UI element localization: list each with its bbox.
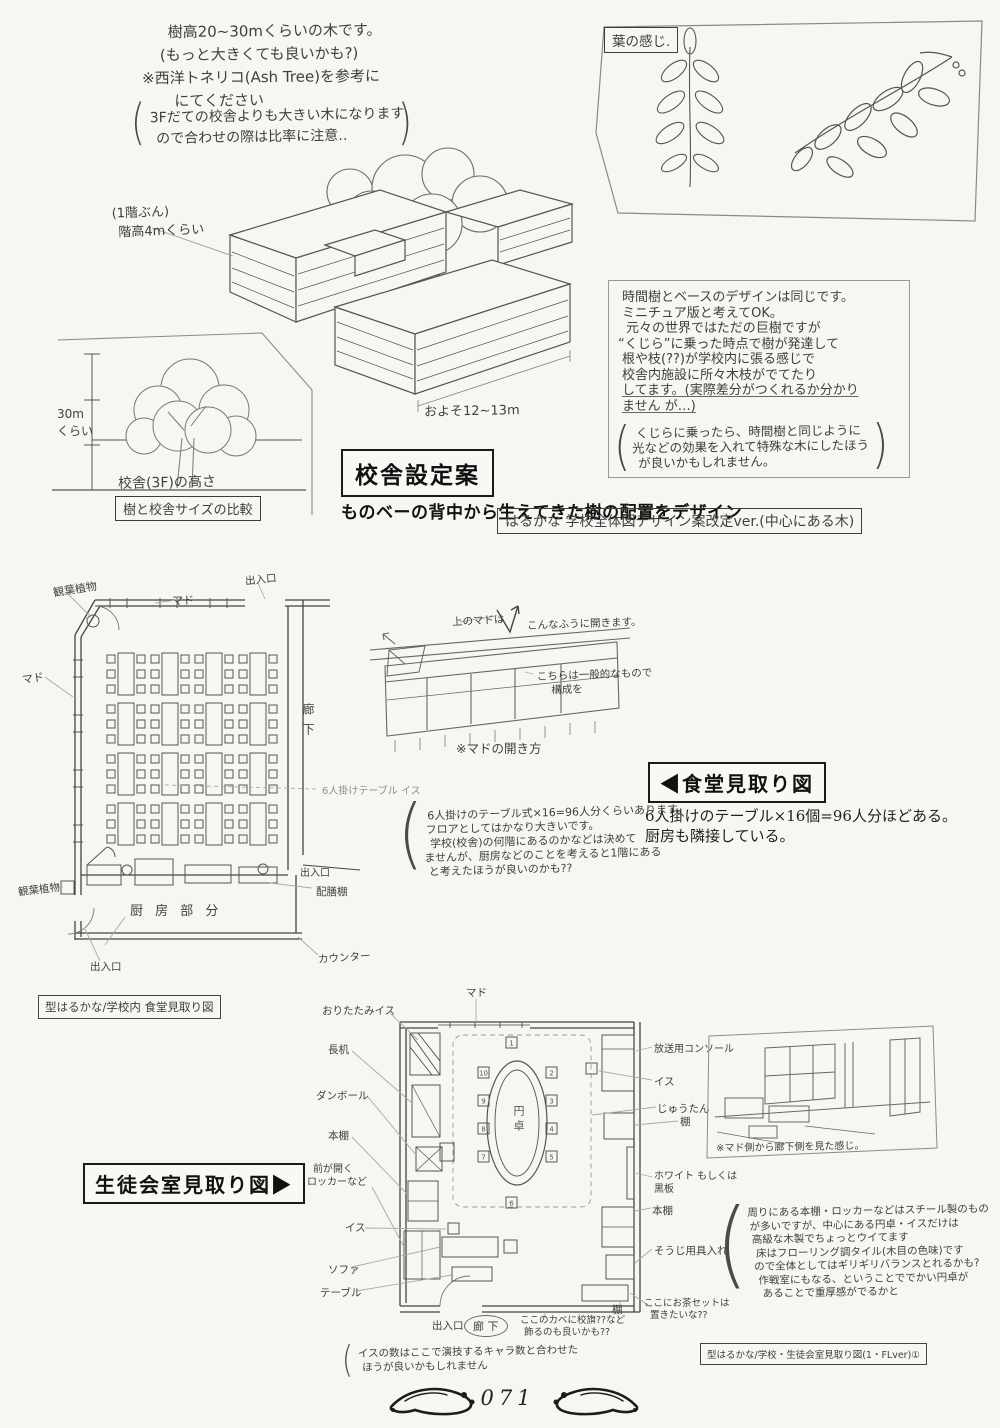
seat-number: 10	[479, 1070, 488, 1078]
note-line: くらい	[57, 423, 93, 440]
council-label-cardboard: ダンボール	[316, 1088, 369, 1103]
note-line: 前が開く	[313, 1163, 367, 1176]
council-label-chair-right: イス	[654, 1074, 675, 1089]
open-paren: (	[614, 420, 630, 473]
cafeteria-label-kitchen: 厨 房 部 分	[130, 900, 222, 919]
cafeteria-label-serving-shelf: 配膳棚	[316, 884, 348, 899]
council-label-locker: 前が開く ロッカーなど	[313, 1163, 367, 1189]
window-note-top-1: 上のマドは	[452, 612, 505, 630]
note-line: 階高4mくらい	[118, 220, 205, 242]
council-label-chair-left: イス	[345, 1220, 366, 1235]
seat-number: 8	[481, 1126, 485, 1134]
note-line: ません が…)	[622, 399, 859, 415]
dining-caption-1: 6人掛けのテーブル×16個=96人分ほどある。	[645, 805, 957, 826]
cafeteria-label-window-left: マド	[21, 669, 45, 688]
close-paren: )	[872, 418, 888, 471]
council-flag-note: ここのカベに校旗??など 飾るのも良いかも??	[520, 1315, 625, 1339]
cafeteria-label-corridor: 廊下	[300, 703, 317, 743]
council-label-folding-chairs: おりたたみイス	[322, 1003, 395, 1018]
building-floor-note: (1階ぶん) 階高4mくらい	[111, 201, 204, 242]
note-line: ホワイト もしくは	[654, 1170, 737, 1183]
council-tea-note: ここにお茶セットは 置きたいな??	[644, 1298, 730, 1322]
council-label-window: マド	[466, 985, 487, 1000]
open-paren: (	[716, 1198, 748, 1292]
seat-number: 4	[549, 1126, 554, 1134]
note-line: “くじら”に乗った時点で樹が発達して	[618, 337, 859, 353]
council-label-corridor: 廊 下	[464, 1315, 508, 1337]
dining-caption-2: 厨房も隣接している。	[645, 825, 795, 846]
council-round-table-label: 円卓	[510, 1105, 526, 1135]
building-width-note: およそ12~13m	[424, 399, 520, 420]
note-line: 樹高20~30mくらいの木です。	[168, 19, 382, 44]
council-label-entrance: 出入口	[432, 1318, 464, 1333]
perspective-caption: ※マド側から廊下側を見た感じ。	[716, 1137, 865, 1155]
tree-compare-building-height: 校舎(3F)の高さ	[118, 471, 216, 493]
council-chairs-note: イスの数はここで演技するキャラ数と合わせた ほうが良いかもしれません	[358, 1343, 579, 1375]
footer-flourish-right	[548, 1383, 643, 1421]
seat-number: 9	[481, 1098, 485, 1106]
window-sketch-caption: ※マドの開き方	[456, 738, 541, 757]
note-line: 時間樹とベースのデザインは同じです。	[622, 290, 859, 306]
cafeteria-label-entrance-bottom: 出入口	[90, 959, 122, 974]
cafeteria-label-entrance-right: 出入口	[300, 864, 330, 879]
council-label-bookshelf-left: 本棚	[328, 1128, 349, 1143]
seat-number: 7	[481, 1154, 485, 1162]
council-label-shelf-right: 棚	[680, 1114, 691, 1129]
tree-compare-caption: 樹と校舎サイズの比較	[115, 496, 261, 521]
note-line: 校舎内施設に所々木枝がでてたり	[622, 368, 859, 384]
note-line: ほうが良いかもしれません	[362, 1357, 578, 1375]
window-note-right: こちらは一般的なもので 構成を	[537, 666, 653, 698]
council-label-sofa: ソファ	[328, 1262, 360, 1277]
footer-flourish-left	[385, 1383, 480, 1421]
note-line: 飾るのも良いかも??	[524, 1327, 625, 1339]
council-label-bookshelf-right: 本棚	[652, 1203, 673, 1218]
page-number: 071	[468, 1386, 548, 1410]
note-line: 根や枝(??)が学校内に張る感じで	[622, 352, 859, 368]
open-paren: (	[398, 796, 423, 873]
leaf-panel-title: 葉の感じ.	[604, 27, 678, 53]
tree-height-note: 樹高20~30mくらいの木です。 (もっと大きくても良いかも?) ※西洋トネリコ…	[168, 19, 383, 113]
artbook-scanned-page: 樹高20~30mくらいの木です。 (もっと大きくても良いかも?) ※西洋トネリコ…	[0, 0, 1000, 1428]
note-line: 3Fだての校舎よりも大きい木になります	[150, 104, 405, 129]
seat-number: 6	[509, 1200, 514, 1208]
note-line: あることで重厚感がでるかと	[763, 1284, 991, 1301]
seat-number: 1	[509, 1040, 513, 1048]
design-note-paren: くじらに乗ったら、時間樹と同じように 光などの効果を入れて特殊な木にしたほう が…	[636, 422, 870, 470]
seat-number: 2	[549, 1070, 553, 1078]
cafeteria-label-window-top: マド	[172, 592, 194, 608]
tree-compare-height-label: 30m くらい	[57, 406, 93, 440]
cafeteria-caption-box: 型はるかな/学校内 食堂見取り図	[38, 995, 221, 1019]
note-line: 30m	[57, 406, 93, 423]
section-title-council-room: 生徒会室見取り図▶	[83, 1163, 305, 1204]
council-material-note: 周りにある本棚・ロッカーなどはスチール製のもの が多いですが、中心にある円卓・イ…	[747, 1203, 990, 1302]
note-line: ここにお茶セットは	[644, 1298, 730, 1310]
section-title-school-plan: 校舎設定案	[341, 449, 494, 497]
note-line: してます。(実際差分がつくれるか分かり	[622, 383, 859, 399]
seat-number: 5	[549, 1154, 553, 1162]
note-line: ロッカーなど	[307, 1176, 367, 1189]
open-paren: (	[342, 1342, 353, 1378]
note-line: ミニチュア版と考えてOK。	[622, 306, 859, 322]
council-caption-box: 型はるかな/学校・生徒会室見取り図(1・FLver)①	[700, 1343, 927, 1365]
school-plan-sub-label: はるかな 学校全体図デザイン案改定ver.(中心にある木)	[497, 508, 862, 534]
note-line: (もっと大きくても良いかも?)	[160, 42, 382, 67]
note-line: 元々の世界ではただの巨樹ですが	[626, 321, 859, 337]
note-line: ※西洋トネリコ(Ash Tree)を参考に	[142, 65, 382, 91]
council-label-long-desk: 長机	[328, 1042, 349, 1057]
seat-number: 3	[549, 1098, 553, 1106]
leaf-branch-right	[788, 52, 965, 181]
note-line: ここのカベに校旗??など	[520, 1315, 625, 1327]
design-note: 時間樹とベースのデザインは同じです。 ミニチュア版と考えてOK。 元々の世界では…	[622, 290, 859, 414]
note-line: 置きたいな??	[650, 1310, 730, 1322]
council-label-table: テーブル	[320, 1285, 361, 1300]
cafeteria-floor-plan	[15, 565, 365, 1035]
section-title-dining-plan: ◀食堂見取り図	[648, 762, 826, 803]
